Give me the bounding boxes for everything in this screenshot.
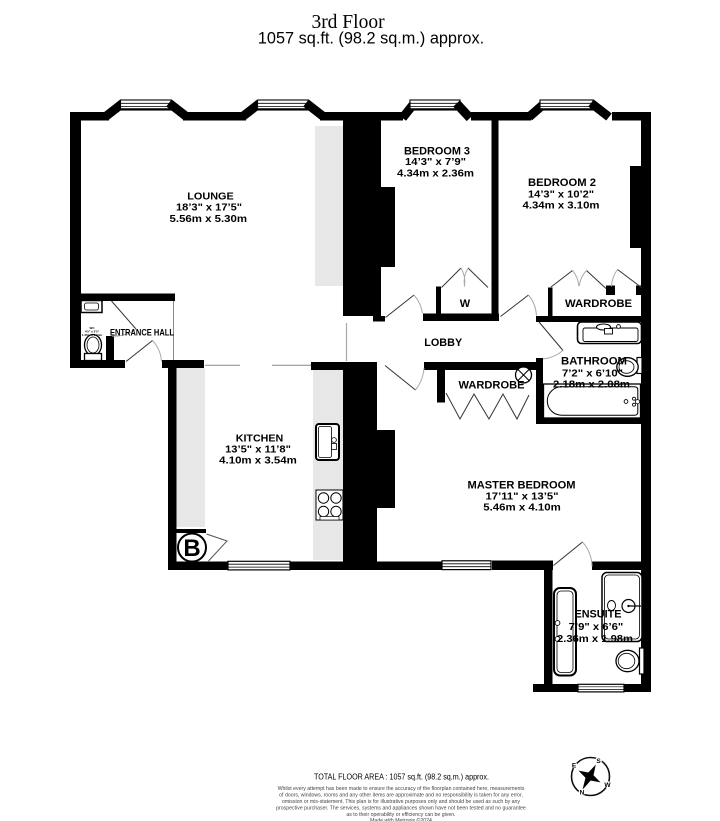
svg-text:14’3" x 7’9": 14’3" x 7’9": [405, 156, 466, 168]
svg-text:E: E: [572, 763, 577, 770]
svg-text:4.10m x 3.54m: 4.10m x 3.54m: [219, 454, 297, 466]
svg-text:4.34m x 2.36m: 4.34m x 2.36m: [397, 168, 474, 180]
svg-text:4.34m x 3.10m: 4.34m x 3.10m: [523, 199, 600, 211]
svg-text:Whilst every attempt has been: Whilst every attempt has been made to en…: [278, 786, 525, 792]
svg-text:2.18m x 2.08m: 2.18m x 2.08m: [553, 379, 630, 391]
svg-text:LOBBY: LOBBY: [424, 337, 463, 349]
svg-text:TOTAL FLOOR AREA : 1057 sq.ft.: TOTAL FLOOR AREA : 1057 sq.ft. (98.2 sq.…: [314, 772, 489, 781]
svg-text:5.46m x 4.10m: 5.46m x 4.10m: [483, 502, 561, 514]
svg-text:5.56m x 5.30m: 5.56m x 5.30m: [170, 213, 248, 225]
svg-text:W: W: [604, 782, 611, 789]
svg-text:Made with Metropix ©2024: Made with Metropix ©2024: [370, 817, 432, 821]
svg-text:ENTRANCE HALL: ENTRANCE HALL: [110, 328, 174, 338]
svg-text:1057 sq.ft. (98.2 sq.m.) appro: 1057 sq.ft. (98.2 sq.m.) approx.: [258, 30, 484, 48]
svg-text:ENSUITE: ENSUITE: [575, 609, 622, 621]
svg-text:2.36m x 1.98m: 2.36m x 1.98m: [557, 633, 633, 645]
svg-text:W: W: [460, 298, 471, 310]
svg-text:prospective purchaser. The ser: prospective purchaser. The services, sys…: [276, 806, 526, 812]
svg-text:WARDROBE: WARDROBE: [459, 380, 525, 392]
svg-text:BEDROOM 2: BEDROOM 2: [528, 177, 596, 189]
svg-text:B: B: [183, 535, 200, 562]
svg-text:BATHROOM: BATHROOM: [561, 356, 627, 368]
svg-text:of doors, windows, rooms and a: of doors, windows, rooms and any other i…: [279, 793, 523, 799]
svg-text:N: N: [580, 790, 585, 797]
svg-text:1.35m x 1.04m: 1.35m x 1.04m: [82, 333, 103, 337]
svg-text:WARDROBE: WARDROBE: [565, 298, 632, 310]
svg-text:S: S: [596, 758, 601, 765]
svg-text:7’9" x 6’6": 7’9" x 6’6": [569, 621, 624, 633]
svg-text:omission or mis-statement. Thi: omission or mis-statement. This plan is …: [282, 799, 520, 805]
